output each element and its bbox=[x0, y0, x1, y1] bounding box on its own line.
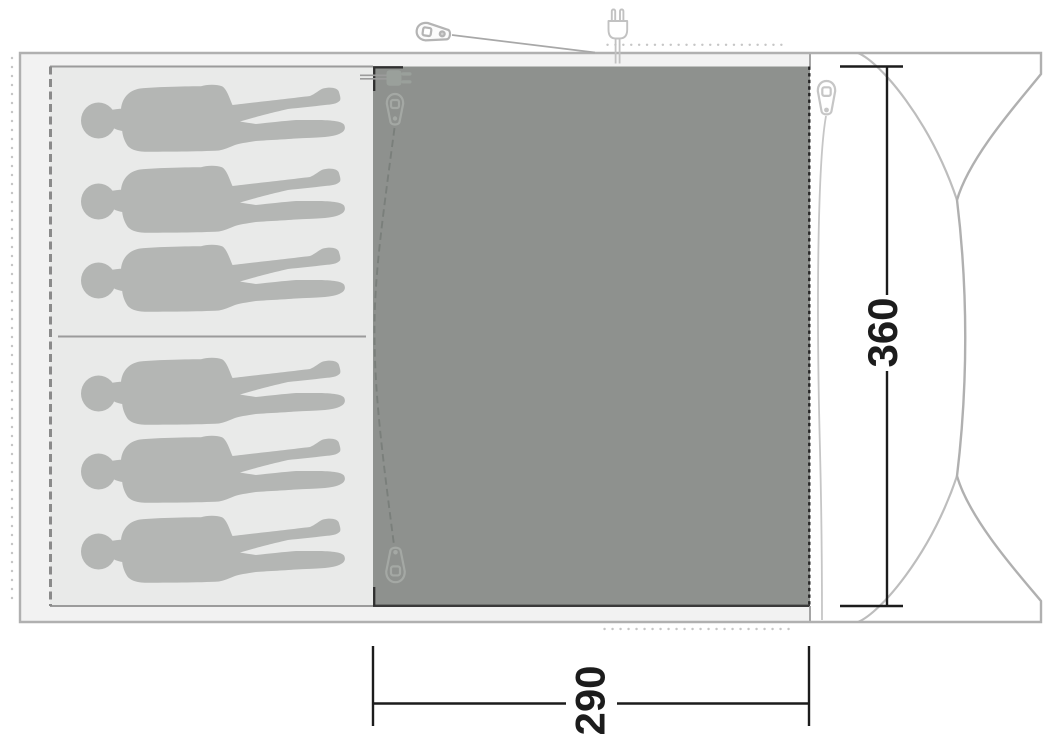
svg-text:360: 360 bbox=[859, 297, 906, 367]
svg-text:290: 290 bbox=[567, 665, 614, 735]
